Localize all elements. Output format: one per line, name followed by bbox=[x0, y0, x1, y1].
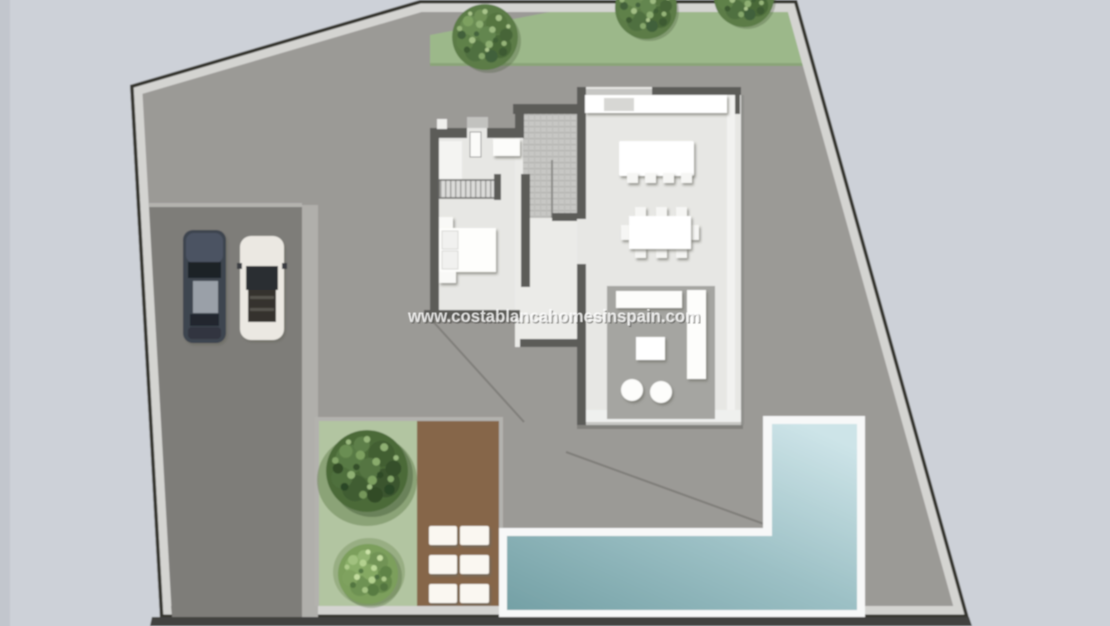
svg-text:www.costablancahomesinspain.co: www.costablancahomesinspain.com bbox=[407, 306, 700, 326]
